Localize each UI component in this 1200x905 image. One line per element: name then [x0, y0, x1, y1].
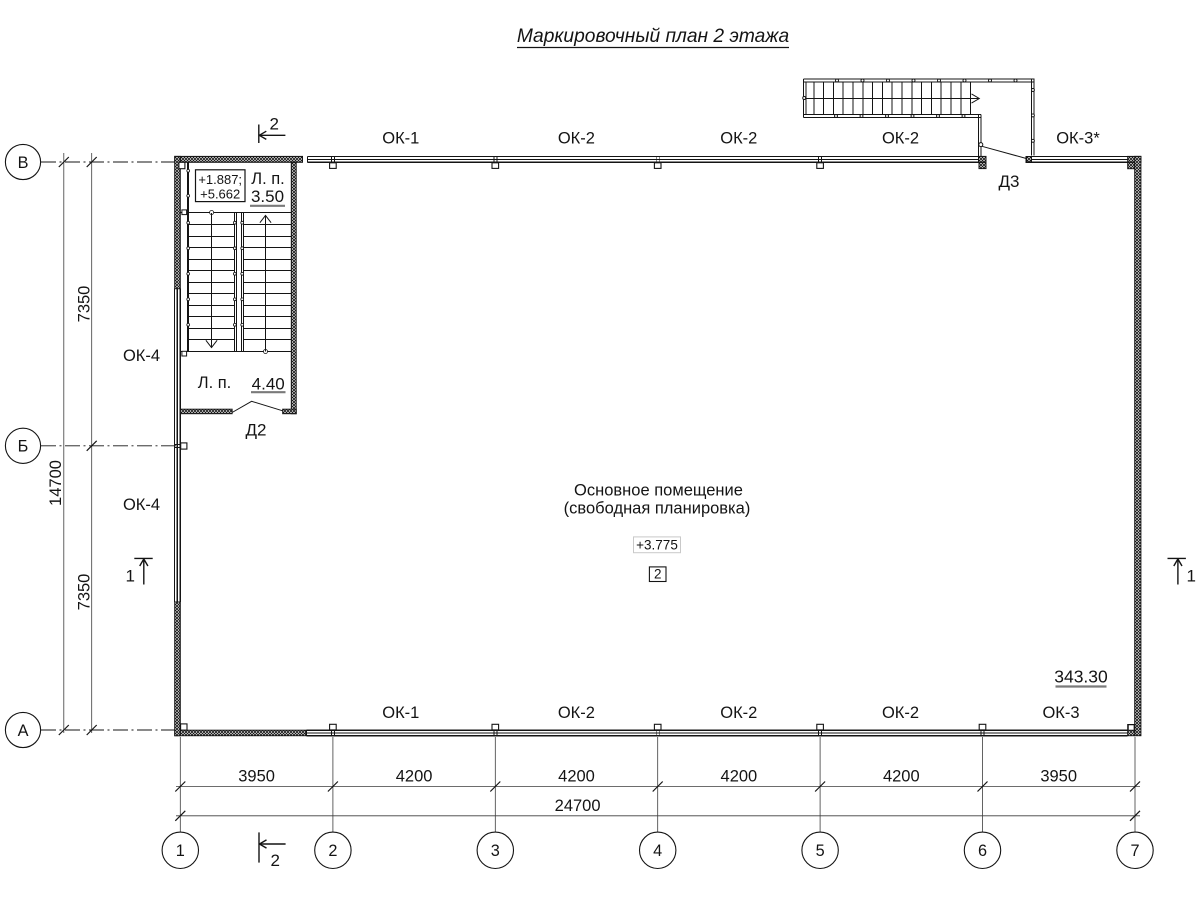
svg-text:+3.775: +3.775 [636, 537, 678, 552]
svg-text:5: 5 [816, 842, 825, 860]
svg-text:Основное помещение: Основное помещение [574, 482, 743, 500]
svg-text:2: 2 [654, 567, 662, 582]
svg-text:+1.887;: +1.887; [198, 172, 242, 187]
svg-text:7350: 7350 [76, 286, 94, 323]
svg-text:А: А [18, 722, 29, 740]
svg-text:ОК-1: ОК-1 [382, 704, 419, 722]
svg-text:2: 2 [328, 842, 337, 860]
svg-text:4.40: 4.40 [252, 374, 285, 393]
svg-text:Д3: Д3 [999, 172, 1020, 191]
svg-text:3: 3 [491, 842, 500, 860]
svg-text:ОК-3*: ОК-3* [1056, 129, 1100, 147]
svg-text:Д2: Д2 [246, 421, 267, 440]
svg-text:1: 1 [126, 567, 135, 586]
svg-text:4200: 4200 [396, 768, 433, 786]
svg-text:Л. п.: Л. п. [198, 374, 232, 392]
svg-text:ОК-4: ОК-4 [123, 496, 160, 514]
svg-text:ОК-2: ОК-2 [720, 704, 757, 722]
svg-text:ОК-4: ОК-4 [123, 347, 160, 365]
svg-text:2: 2 [270, 115, 279, 134]
svg-text:4200: 4200 [558, 768, 595, 786]
svg-text:ОК-2: ОК-2 [882, 704, 919, 722]
svg-text:1: 1 [1187, 567, 1196, 586]
svg-text:(свободная планировка): (свободная планировка) [564, 500, 751, 518]
svg-text:3.50: 3.50 [251, 187, 284, 206]
svg-text:Б: Б [18, 438, 29, 456]
svg-text:3950: 3950 [1040, 768, 1077, 786]
svg-text:2: 2 [271, 851, 280, 870]
svg-text:ОК-1: ОК-1 [382, 129, 419, 147]
svg-text:Маркировочный план 2 этажа: Маркировочный план 2 этажа [517, 26, 790, 47]
svg-text:6: 6 [978, 842, 987, 860]
svg-text:7350: 7350 [76, 574, 94, 611]
svg-text:+5.662: +5.662 [200, 187, 240, 202]
svg-text:24700: 24700 [555, 797, 601, 815]
svg-text:ОК-2: ОК-2 [720, 129, 757, 147]
svg-text:4200: 4200 [883, 768, 920, 786]
svg-text:14700: 14700 [47, 460, 65, 506]
svg-text:4200: 4200 [721, 768, 758, 786]
svg-text:ОК-2: ОК-2 [558, 704, 595, 722]
svg-text:343.30: 343.30 [1054, 666, 1108, 686]
svg-text:4: 4 [653, 842, 662, 860]
svg-text:1: 1 [176, 842, 185, 860]
svg-text:ОК-3: ОК-3 [1042, 704, 1079, 722]
svg-text:7: 7 [1130, 842, 1139, 860]
svg-text:3950: 3950 [238, 768, 275, 786]
svg-text:В: В [18, 154, 29, 172]
svg-text:Л. п.: Л. п. [251, 170, 285, 188]
svg-text:ОК-2: ОК-2 [882, 129, 919, 147]
svg-text:ОК-2: ОК-2 [558, 129, 595, 147]
